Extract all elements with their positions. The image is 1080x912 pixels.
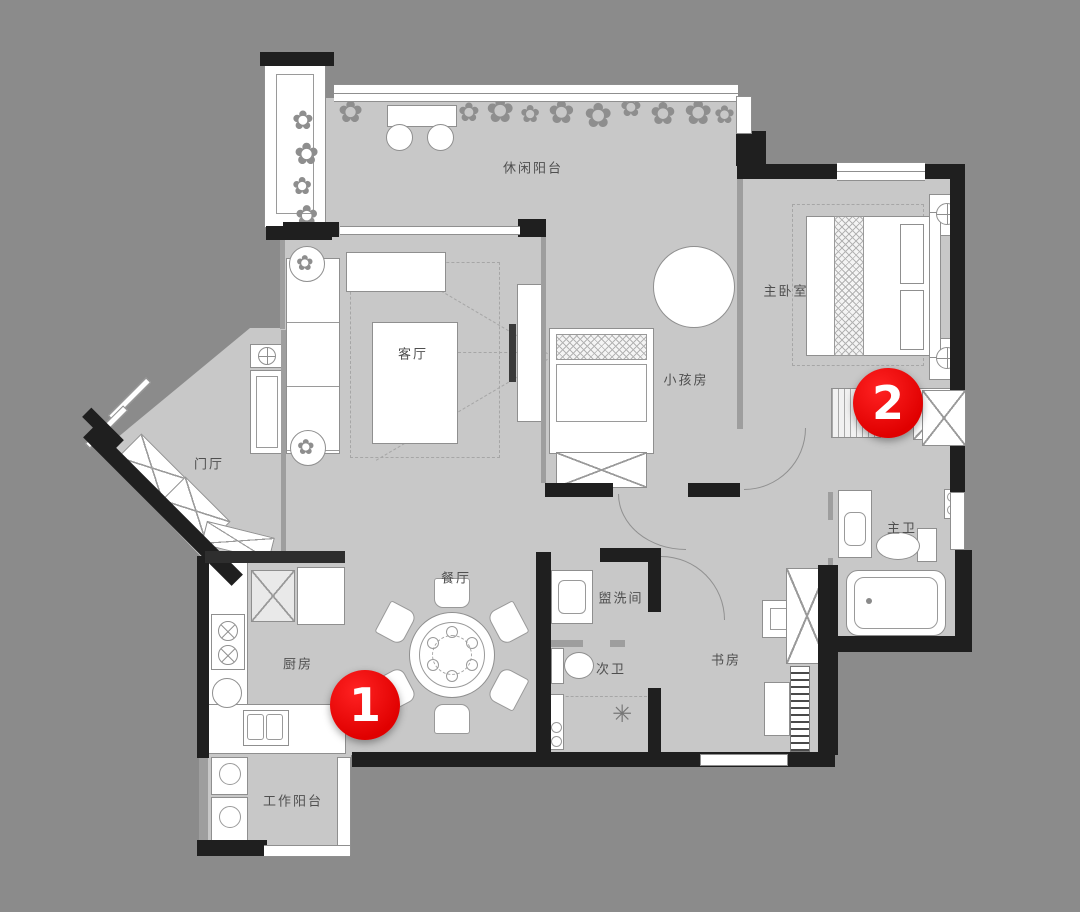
kitchen-round-sink: [212, 678, 242, 708]
wall-segment: [518, 219, 546, 237]
wall-segment: [352, 752, 545, 767]
partition-wall: [199, 756, 208, 844]
marker-1[interactable]: 1: [330, 670, 400, 740]
balcony-stool: [427, 124, 454, 151]
plant-icon: ✿: [297, 437, 315, 458]
drain: [866, 598, 872, 604]
master-bed-blanket: [834, 216, 864, 356]
washing-machine-door: [219, 806, 241, 828]
wall-segment: [545, 483, 613, 497]
tv: [509, 324, 516, 382]
kids-bed-pillow: [556, 334, 647, 360]
partition-wall: [280, 237, 285, 329]
partition-wall: [541, 237, 546, 483]
marker-2-number: 2: [872, 376, 904, 430]
marker-1-number: 1: [349, 678, 381, 732]
room-label-work-balcony: 工作阳台: [263, 791, 323, 810]
toilet-tank: [551, 648, 564, 684]
sink-basin: [247, 714, 264, 740]
piano: [790, 666, 810, 752]
plant-icon: ✿: [458, 100, 480, 126]
wall-segment: [205, 551, 345, 563]
place-setting: [466, 637, 478, 649]
plant-icon: ✿: [520, 102, 540, 126]
toilet-bowl: [564, 652, 594, 679]
work-balcony-side: [337, 757, 351, 855]
wall-segment: [283, 222, 339, 237]
plant-icon: ✿: [292, 108, 314, 134]
kids-bed-mattress: [556, 364, 647, 422]
washroom-basin: [558, 580, 586, 614]
floor-corridor: [737, 490, 833, 562]
room-label-living-room: 客厅: [398, 344, 428, 363]
lamp-icon: [258, 347, 276, 365]
wall-segment: [830, 636, 972, 652]
wall-segment: [600, 548, 655, 562]
wall-segment: [950, 444, 965, 492]
bedroom-window: [837, 162, 925, 181]
plant-icon: ✿: [296, 253, 314, 274]
kitchen-cabinet: [297, 567, 345, 625]
bath-shelf-knob: [551, 736, 562, 747]
plant-icon: ✿: [338, 98, 363, 128]
room-label-study: 书房: [711, 650, 741, 669]
balcony-stool: [386, 124, 413, 151]
wall-segment: [818, 565, 838, 755]
marker-2[interactable]: 2: [853, 368, 923, 438]
plant-icon: ✿: [714, 102, 735, 127]
wall-segment: [688, 483, 740, 497]
wall-segment: [536, 552, 551, 764]
partition-wall: [828, 492, 833, 520]
shower-head-icon: ✳: [612, 702, 632, 726]
room-label-master-bathroom: 主卫: [887, 518, 917, 537]
room-label-leisure-balcony: 休闲阳台: [503, 158, 563, 177]
wall-segment: [737, 164, 837, 179]
room-label-second-bathroom: 次卫: [596, 659, 626, 678]
dining-chair: [434, 704, 470, 734]
sofa: [286, 258, 340, 454]
shower-divider: [551, 696, 647, 697]
wall-segment: [648, 548, 661, 612]
work-balcony-railing: [264, 845, 350, 857]
balcony-door-track: [340, 226, 520, 235]
partition-wall: [737, 179, 743, 429]
wall-segment: [543, 752, 835, 767]
tv-console: [517, 284, 543, 422]
bath-sink-basin: [844, 512, 866, 546]
piano-bench: [764, 682, 790, 736]
plant-icon: ✿: [294, 140, 319, 170]
toilet-tank: [917, 528, 937, 562]
plant-icon: ✿: [292, 174, 312, 198]
place-setting: [446, 670, 458, 682]
partition-wall: [281, 330, 286, 556]
room-label-dining-room: 餐厅: [441, 568, 471, 587]
hall-cabinet-inner: [256, 376, 278, 448]
fridge: [251, 570, 295, 622]
room-label-kitchen: 厨房: [283, 654, 313, 673]
plant-icon: ✿: [650, 99, 676, 130]
room-label-kids-room: 小孩房: [663, 370, 708, 389]
wall-jog: [736, 96, 752, 134]
wall-segment: [260, 52, 334, 66]
room-label-washroom: 盥洗间: [598, 588, 643, 607]
balcony-railing: [334, 84, 738, 102]
place-setting: [466, 659, 478, 671]
room-label-master-bedroom: 主卧室: [763, 281, 808, 300]
wall-segment: [197, 840, 267, 856]
study-window: [700, 754, 788, 766]
headboard: [929, 212, 941, 358]
pillow: [900, 290, 924, 350]
place-setting: [427, 637, 439, 649]
sofa-console: [346, 252, 446, 292]
bath-window: [950, 492, 965, 550]
wall-segment: [950, 164, 965, 392]
wall-segment: [648, 688, 661, 764]
place-setting: [427, 659, 439, 671]
coffee-table: [372, 322, 458, 444]
room-label-foyer: 门厅: [194, 454, 224, 473]
partition-wall: [610, 640, 625, 647]
pillow: [900, 224, 924, 284]
wall-segment: [736, 131, 766, 166]
floor-plan-canvas: ✿ ✿ ✿ ✿ ✿ ✿ ✿ ✿ ✿ ✿ ✿ ✿ ✿ ✿ ✿ ✿: [0, 0, 1080, 912]
bath-shelf-knob: [551, 722, 562, 733]
side-window: [922, 390, 966, 446]
plant-icon: ✿: [584, 99, 613, 133]
sink-basin: [266, 714, 283, 740]
round-rug: [653, 246, 735, 328]
washing-machine-door: [219, 763, 241, 785]
wall-segment: [197, 556, 209, 758]
place-setting: [446, 626, 458, 638]
